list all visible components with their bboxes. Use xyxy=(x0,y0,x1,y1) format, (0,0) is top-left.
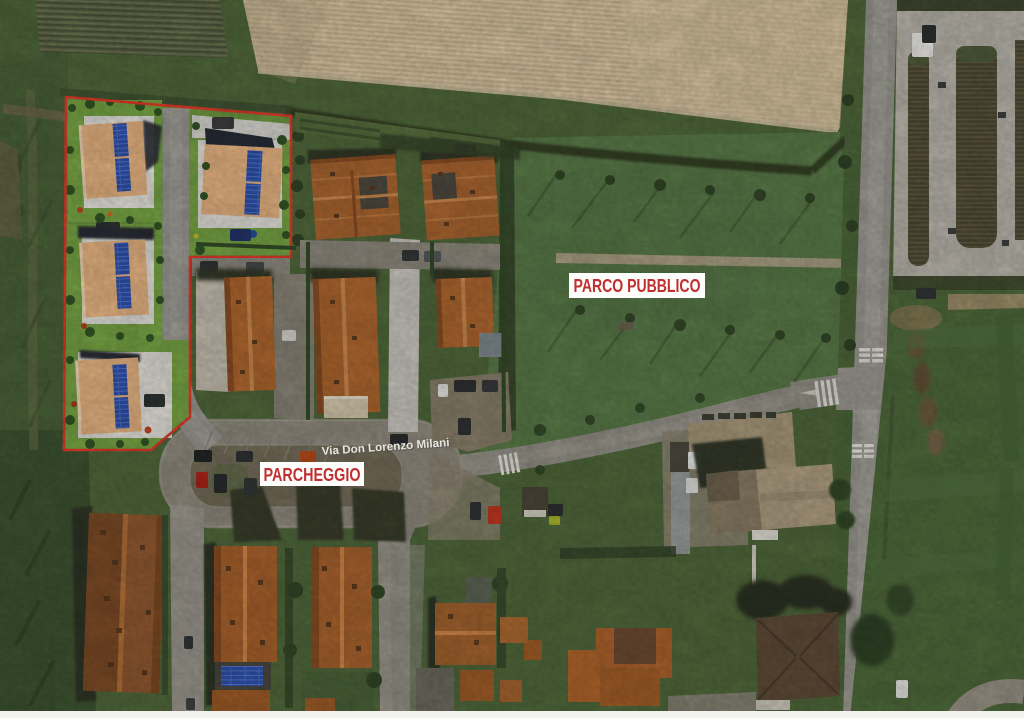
svg-text:PARCO PUBBLICO: PARCO PUBBLICO xyxy=(574,276,701,296)
svg-text:PARCHEGGIO: PARCHEGGIO xyxy=(264,465,361,485)
